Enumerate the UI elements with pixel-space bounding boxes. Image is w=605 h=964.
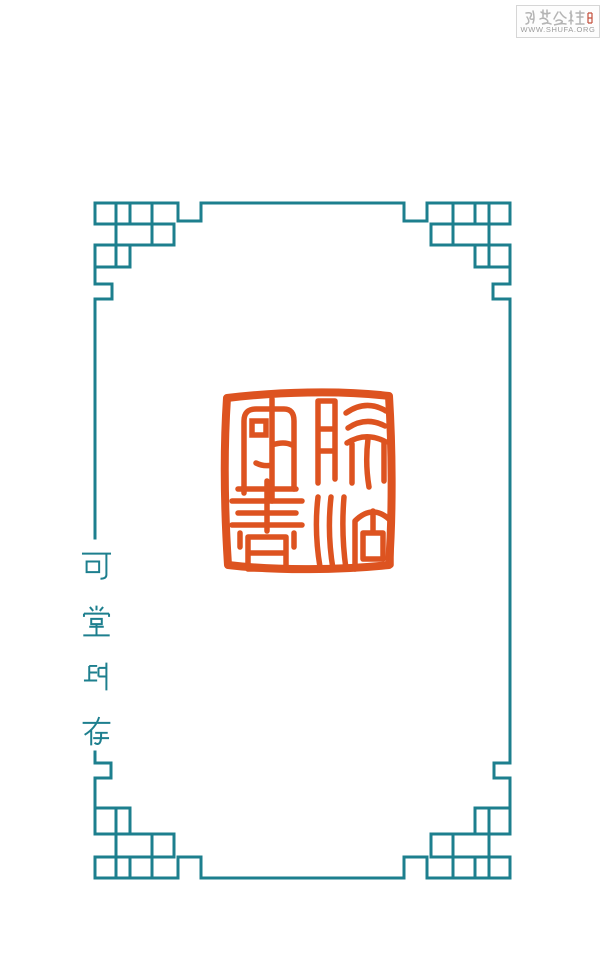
seal-glyphs — [214, 381, 402, 579]
caption-char-yin: 印 — [80, 660, 113, 693]
caption-char-tang-glyph — [80, 605, 113, 638]
seal-impression: Vermilion square seal impression, four c… — [214, 381, 402, 579]
caption-char-ke: 可 — [80, 549, 113, 582]
caption-char-yin-glyph — [80, 660, 113, 693]
page: 书艺公社 WWW.SHUFA.ORG 可 堂 印 存 — [0, 0, 605, 964]
caption-char-cun: 存 — [80, 715, 113, 748]
seal-glyph-bottom-right — [316, 497, 391, 569]
seal-glyph-top-right — [318, 401, 386, 487]
caption-char-cun-glyph — [80, 715, 113, 748]
caption-char-ke-glyph — [80, 549, 113, 582]
caption-char-tang: 堂 — [80, 605, 113, 638]
